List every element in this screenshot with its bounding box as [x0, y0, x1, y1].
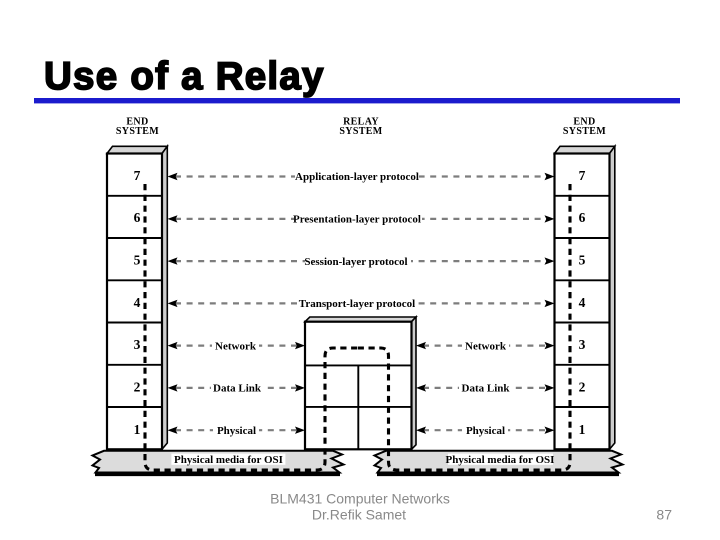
svg-text:3: 3 [134, 337, 141, 352]
svg-text:BLM431 Computer Networks: BLM431 Computer Networks [270, 491, 450, 507]
svg-text:Application-layer protocol: Application-layer protocol [295, 171, 419, 183]
svg-text:Data Link: Data Link [462, 383, 511, 395]
svg-text:6: 6 [134, 210, 141, 225]
svg-text:Transport-layer protocol: Transport-layer protocol [299, 298, 415, 310]
svg-text:Network: Network [215, 340, 257, 352]
svg-text:Physical media for OSI: Physical media for OSI [446, 454, 555, 466]
svg-text:Physical: Physical [217, 425, 256, 437]
svg-text:Dr.Refik Samet: Dr.Refik Samet [312, 506, 406, 522]
svg-text:Presentation-layer protocol: Presentation-layer protocol [293, 214, 421, 226]
svg-text:1: 1 [134, 422, 141, 437]
svg-text:2: 2 [579, 380, 586, 395]
svg-text:Use of a Relay: Use of a Relay [44, 55, 325, 98]
svg-text:7: 7 [579, 168, 586, 183]
svg-text:Session-layer protocol: Session-layer protocol [304, 256, 407, 268]
svg-text:7: 7 [134, 168, 141, 183]
svg-text:1: 1 [579, 422, 586, 437]
svg-text:6: 6 [579, 210, 586, 225]
svg-text:4: 4 [579, 295, 586, 310]
svg-text:87: 87 [656, 506, 672, 522]
svg-text:SYSTEM: SYSTEM [563, 126, 606, 137]
svg-text:Data Link: Data Link [213, 383, 262, 395]
svg-text:4: 4 [134, 295, 141, 310]
svg-text:3: 3 [579, 337, 586, 352]
svg-text:Network: Network [465, 340, 507, 352]
svg-text:Physical media for OSI: Physical media for OSI [174, 454, 283, 466]
svg-text:5: 5 [134, 253, 141, 268]
svg-text:2: 2 [134, 380, 141, 395]
svg-text:5: 5 [579, 253, 586, 268]
svg-text:Physical: Physical [466, 425, 505, 437]
svg-text:SYSTEM: SYSTEM [116, 126, 159, 137]
svg-text:SYSTEM: SYSTEM [339, 126, 382, 137]
